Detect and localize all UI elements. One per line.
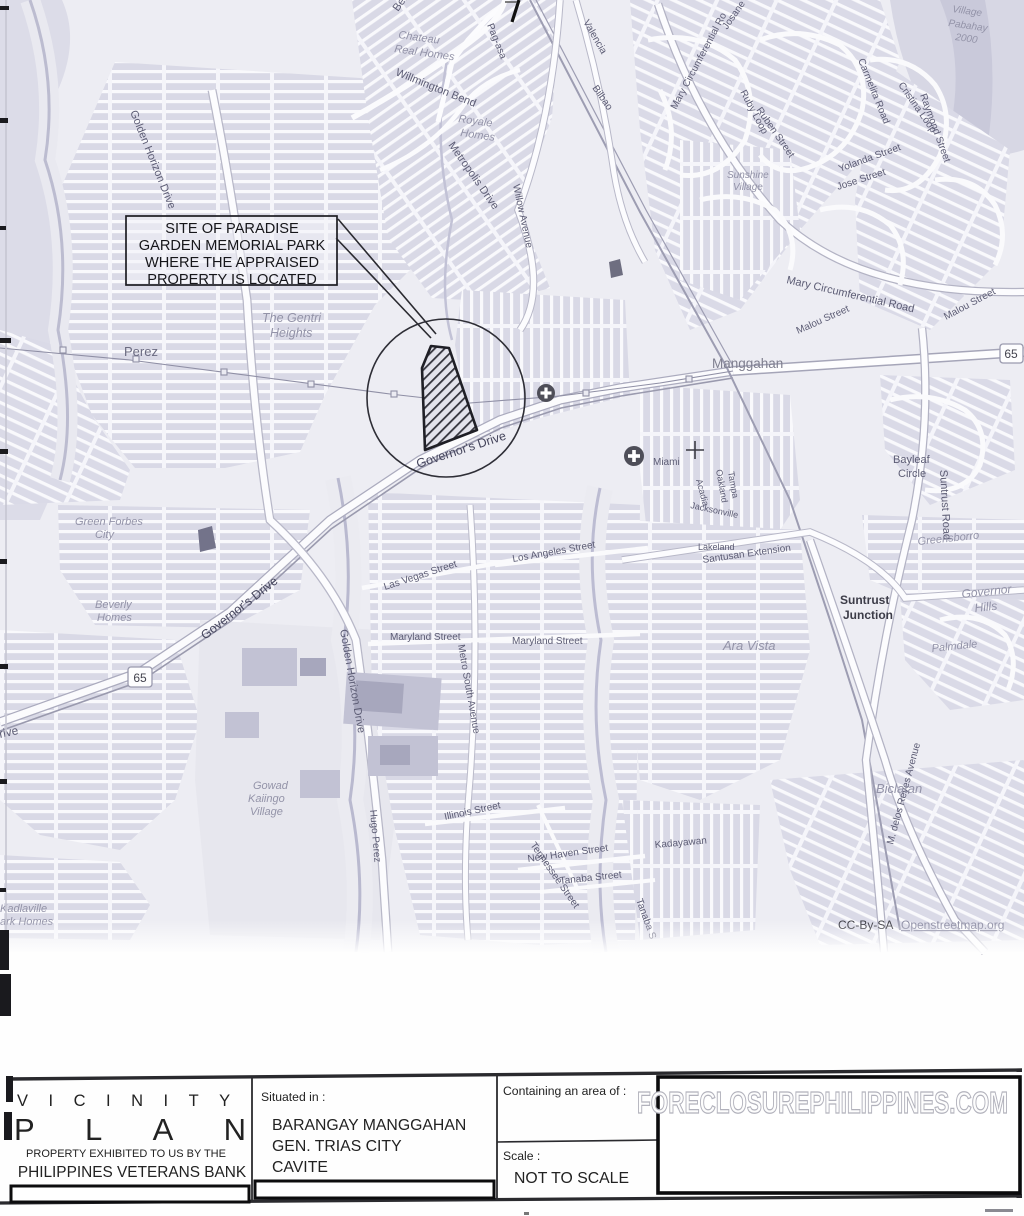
svg-text:Situated in :: Situated in :: [261, 1090, 325, 1104]
svg-text:CAVITE: CAVITE: [272, 1159, 328, 1176]
svg-text:SITE OF PARADISE: SITE OF PARADISE: [165, 221, 299, 237]
svg-text:Village: Village: [250, 806, 283, 818]
svg-text:PHILIPPINES VETERANS BANK: PHILIPPINES VETERANS BANK: [18, 1164, 247, 1181]
svg-text:Biclatan: Biclatan: [876, 781, 922, 796]
svg-text:Perez: Perez: [124, 344, 158, 359]
svg-text:65: 65: [1004, 347, 1018, 361]
svg-text:Miami: Miami: [653, 457, 680, 468]
svg-text:Heights: Heights: [270, 326, 312, 340]
svg-text:Bayleaf: Bayleaf: [893, 454, 931, 466]
svg-text:PROPERTY EXHIBITED TO US BY TH: PROPERTY EXHIBITED TO US BY THE: [26, 1148, 226, 1160]
svg-text:WHERE THE APPRAISED: WHERE THE APPRAISED: [145, 255, 319, 271]
svg-text:The Gentri: The Gentri: [262, 311, 322, 325]
svg-text:Village: Village: [733, 182, 763, 193]
svg-text:Circle: Circle: [898, 468, 926, 480]
svg-text:Kadlaville: Kadlaville: [0, 903, 47, 915]
svg-text:PROPERTY IS LOCATED: PROPERTY IS LOCATED: [147, 272, 317, 288]
svg-text:Containing an area of :: Containing an area of :: [503, 1084, 626, 1098]
svg-text:FORECLOSUREPHILIPPINES.COM: FORECLOSUREPHILIPPINES.COM: [637, 1085, 1008, 1120]
svg-text:Beverly: Beverly: [95, 599, 133, 611]
svg-text:65: 65: [133, 671, 147, 685]
svg-text:Junction: Junction: [843, 608, 893, 622]
svg-text:Manggahan: Manggahan: [712, 356, 783, 371]
svg-text:Suntrust: Suntrust: [840, 593, 889, 607]
svg-text:BARANGAY MANGGAHAN: BARANGAY MANGGAHAN: [272, 1117, 466, 1134]
svg-text:Hills: Hills: [974, 599, 998, 615]
svg-text:VICINITY: VICINITY: [17, 1092, 251, 1110]
svg-text:Scale :: Scale :: [503, 1149, 540, 1163]
svg-text:Ara Vista: Ara Vista: [722, 638, 776, 653]
svg-text:Kaiingo: Kaiingo: [248, 793, 285, 805]
svg-text:City: City: [95, 529, 115, 541]
svg-text:Green Forbes: Green Forbes: [75, 516, 143, 528]
svg-text:NOT TO SCALE: NOT TO SCALE: [514, 1170, 629, 1187]
svg-text:GEN. TRIAS CITY: GEN. TRIAS CITY: [272, 1138, 402, 1155]
svg-text:Sunshine: Sunshine: [727, 170, 769, 181]
svg-text:Maryland Street: Maryland Street: [390, 632, 461, 643]
svg-text:Gowad: Gowad: [253, 780, 289, 792]
svg-text:Maryland Street: Maryland Street: [512, 636, 583, 647]
svg-text:GARDEN MEMORIAL PARK: GARDEN MEMORIAL PARK: [139, 238, 326, 254]
svg-text:Homes: Homes: [97, 612, 132, 624]
